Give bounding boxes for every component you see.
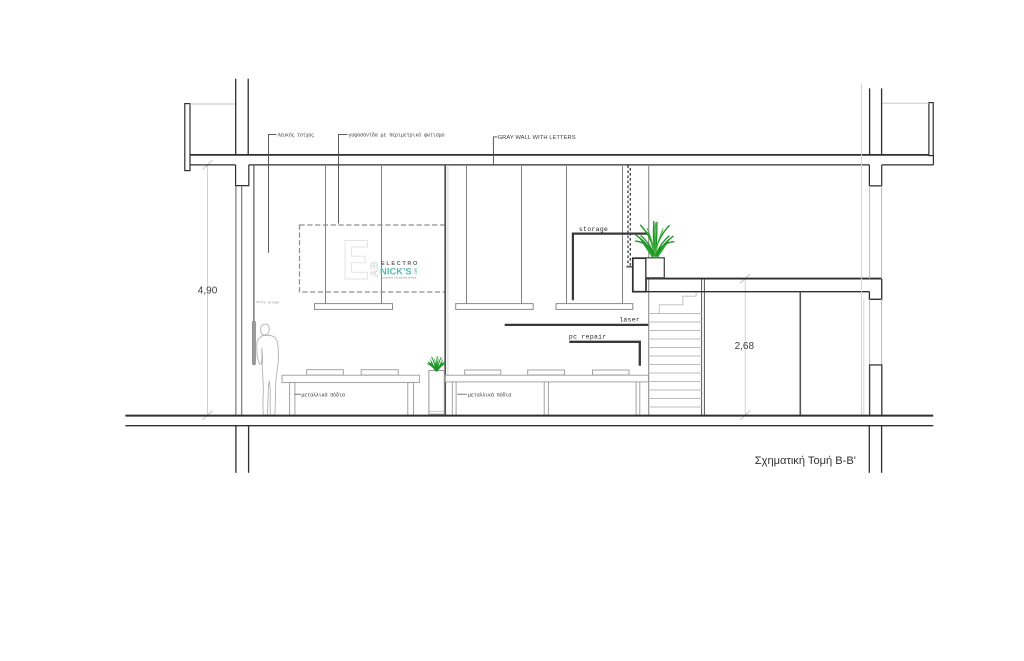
svg-text:Λευκός τοίχος: Λευκός τοίχος <box>278 133 315 139</box>
svg-text:AB: AB <box>369 261 381 277</box>
svg-text:tv screen: tv screen <box>262 301 280 305</box>
svg-text:μεταλλικά πόδια: μεταλλικά πόδια <box>468 393 512 399</box>
svg-text:Σχηματική Τομή Β-Β': Σχηματική Τομή Β-Β' <box>755 455 856 467</box>
svg-text:storage: storage <box>579 226 608 233</box>
svg-text:μεταλλικά πόδια: μεταλλικά πόδια <box>301 393 345 399</box>
svg-text:GRAY WALL WITH LETTERS: GRAY WALL WITH LETTERS <box>498 135 576 141</box>
svg-text:.GR: .GR <box>414 268 418 275</box>
svg-text:2,68: 2,68 <box>735 341 755 352</box>
svg-text:4,90: 4,90 <box>198 286 218 297</box>
svg-text:NICK'S: NICK'S <box>380 267 412 277</box>
svg-text:computers | 3d printing servic: computers | 3d printing service <box>381 276 417 280</box>
svg-text:pc repair: pc repair <box>569 334 607 341</box>
svg-text:laser: laser <box>619 316 640 323</box>
svg-text:γυψοσανίδα με περιμετρικό φωτι: γυψοσανίδα με περιμετρικό φωτισμο <box>349 133 445 139</box>
